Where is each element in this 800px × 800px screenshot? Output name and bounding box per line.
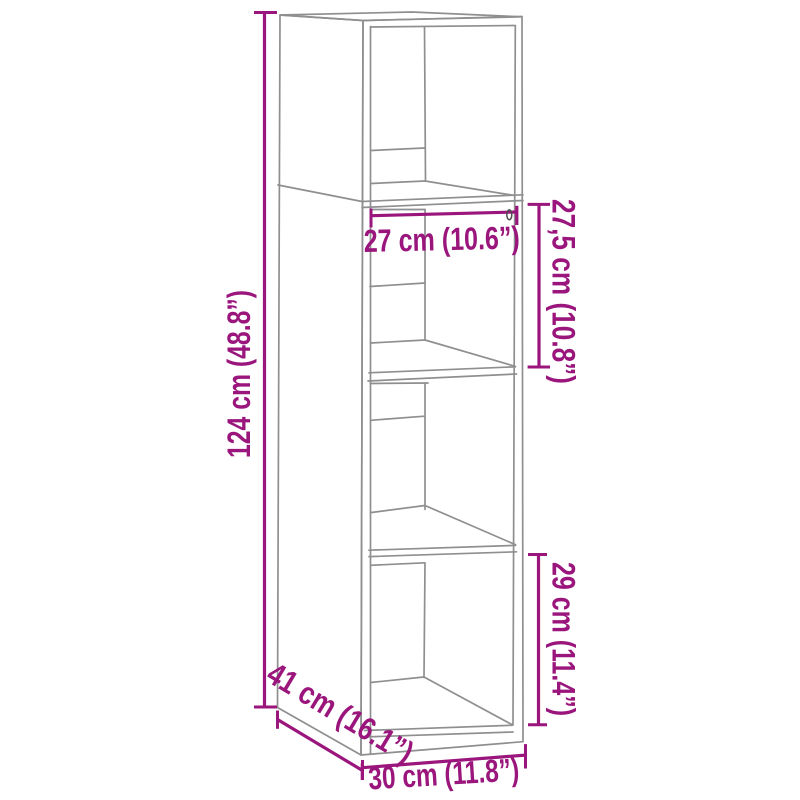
svg-text:27,5 cm (10.8”): 27,5 cm (10.8”) (546, 199, 582, 384)
svg-text:124 cm (48.8”): 124 cm (48.8”) (221, 290, 257, 458)
svg-text:27 cm (10.6”): 27 cm (10.6”) (363, 219, 520, 259)
svg-text:29 cm (11.4”): 29 cm (11.4”) (546, 562, 582, 716)
